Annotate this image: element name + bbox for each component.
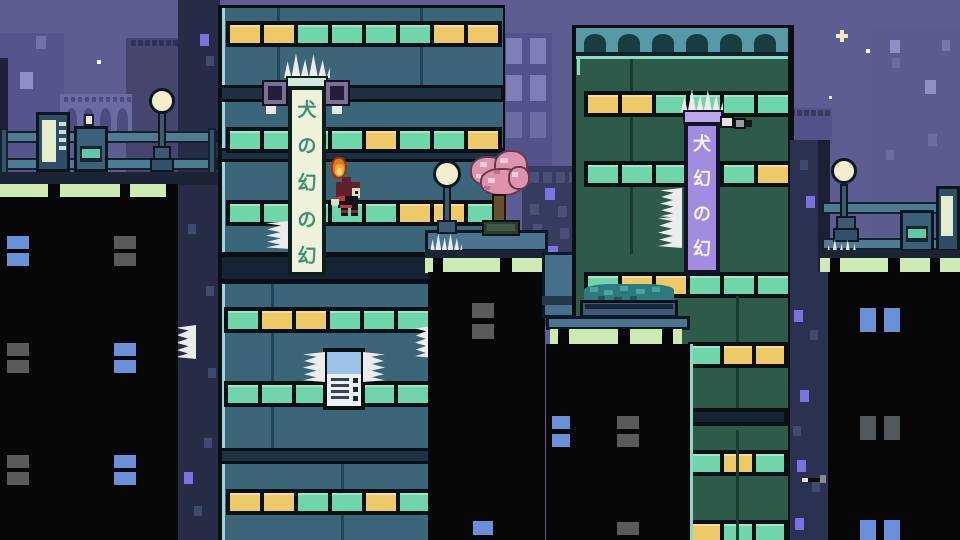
- window-strip-f4-segment: [330, 311, 360, 329]
- colonnade-dentils: [120, 97, 124, 102]
- right-building-edge-tick: [577, 59, 580, 75]
- bg-dentils: [145, 40, 150, 46]
- navy-window-purple: [795, 518, 804, 530]
- star-dot: [829, 96, 832, 99]
- security-camera-mount: [720, 116, 734, 128]
- navy-window-dim: [810, 330, 818, 340]
- player-shoe: [351, 210, 358, 213]
- navy-window-dim: [800, 160, 808, 170]
- window-pair-gray: [472, 303, 494, 318]
- window-pair-blue: [552, 434, 570, 447]
- banner-right-char: の: [690, 201, 714, 229]
- game-viewport[interactable]: 犬の幻の幻犬幻の幻: [0, 0, 960, 540]
- window-strip-f1-segment: [468, 25, 498, 43]
- navy-window-dim: [194, 506, 202, 516]
- notice-dot: [353, 396, 358, 401]
- speaker-cone: [268, 86, 282, 100]
- parapet-notch: [120, 184, 130, 198]
- window-strip-f1-segment: [264, 25, 294, 43]
- window-pair-blue: [7, 253, 29, 266]
- bottle: [84, 114, 94, 126]
- kiosk-label: [908, 229, 926, 238]
- window-strip-s2-segment: [622, 165, 652, 183]
- window-pair-gray: [472, 324, 494, 339]
- cornice-arches: [754, 34, 776, 52]
- window-strip-f6-segment: [366, 493, 396, 511]
- notice-line: [331, 384, 349, 387]
- cornice-arches: [618, 34, 640, 52]
- navy-window-purple: [797, 460, 806, 472]
- bg-window-dim: [530, 172, 539, 183]
- colonnade-dentils: [78, 97, 82, 102]
- cornice-arches: [720, 34, 742, 52]
- window-strip-f6-segment: [400, 493, 430, 511]
- street-lamp-base: [150, 158, 174, 172]
- parapet-notch: [500, 258, 512, 273]
- navy-window-dim: [204, 438, 212, 448]
- parapet-notch: [662, 329, 673, 344]
- notice-line: [331, 396, 349, 399]
- window-pair-gray: [7, 343, 29, 356]
- window-strip-s2-segment: [758, 165, 788, 183]
- cornice-arches: [584, 34, 606, 52]
- colonnade-dentils: [64, 97, 68, 102]
- window-strip-f3-segment: [230, 204, 260, 222]
- cherry-highlight: [476, 174, 481, 178]
- window-pair-blue: [114, 360, 136, 373]
- vending-screen: [941, 196, 953, 236]
- bg-dentils: [152, 40, 157, 46]
- bg-window: [886, 150, 894, 160]
- bg-big-window: [530, 75, 546, 101]
- cherry-highlight: [500, 158, 508, 163]
- security-camera-lens: [746, 120, 752, 127]
- player-hair-spike: [342, 177, 351, 184]
- right-building-edge-light: [690, 344, 693, 540]
- vending-slot: [59, 122, 66, 126]
- navy-window-dim: [206, 286, 214, 296]
- bg-window-dim: [530, 204, 539, 215]
- star-dot: [97, 60, 101, 64]
- colonnade-dentils: [85, 97, 89, 102]
- cherry-highlight: [488, 178, 495, 183]
- bush-highlight: [604, 290, 613, 295]
- navy-window-purple: [200, 34, 209, 46]
- window-strip-s6-segment: [692, 524, 720, 540]
- parapet-windows: [0, 184, 178, 198]
- window-strip-f5-segment: [364, 385, 394, 403]
- bg-window: [892, 58, 900, 68]
- colonnade-dentils: [92, 97, 96, 102]
- bg-dentils: [138, 40, 143, 46]
- bg-dentils: [811, 110, 816, 116]
- bg-big-window: [506, 38, 522, 64]
- bg-window: [928, 134, 937, 146]
- window-strip-s4-segment: [724, 346, 752, 364]
- window-strip-f5-segment: [262, 385, 292, 403]
- parapet-notch: [830, 258, 840, 272]
- navy-window-dim: [206, 56, 214, 66]
- cherry-canopy: [508, 166, 530, 190]
- vending-screen: [42, 120, 56, 162]
- window-pair-blue: [473, 521, 493, 535]
- mid-parapet-windows: [425, 258, 545, 273]
- window-strip-f1-segment: [434, 25, 464, 43]
- window-strip-f1-segment: [230, 25, 260, 43]
- window-pair-blue: [552, 416, 570, 429]
- window-pair-gray: [617, 522, 639, 535]
- window-strip-f5-segment: [296, 385, 326, 403]
- notice-dot: [353, 378, 358, 383]
- cherry-pot-inner: [487, 224, 515, 231]
- banner-right-char: 幻: [690, 236, 714, 264]
- navy-window-purple: [806, 196, 815, 208]
- railing-post: [0, 128, 8, 176]
- roof-lamp-base: [833, 228, 859, 242]
- window-strip-f2-segment: [434, 131, 464, 149]
- window-strip-s6-segment: [756, 524, 784, 540]
- parapet-notch: [618, 329, 630, 344]
- navy-window-dim: [793, 426, 801, 436]
- banner-left-char: 幻: [294, 169, 320, 197]
- drone-tail: [820, 475, 826, 483]
- cherry-shadow: [484, 186, 490, 190]
- bg-big-window: [506, 112, 522, 138]
- navy-window-purple: [794, 310, 803, 322]
- bg-dentils: [818, 110, 823, 116]
- window-pair-blue: [114, 455, 136, 468]
- player-hand: [331, 199, 339, 205]
- window-strip-f3-segment: [366, 204, 396, 222]
- window-pair-gray: [617, 434, 639, 447]
- navy-window-dim: [812, 482, 820, 492]
- window-pair-gray: [860, 416, 876, 440]
- plaza-lamp-base: [437, 220, 457, 234]
- window-strip-f5-segment: [398, 385, 428, 403]
- street-lamp-globe: [149, 88, 175, 114]
- window-strip-f2-segment: [332, 131, 362, 149]
- bg-dentils: [166, 40, 171, 46]
- window-strip-f6-segment: [298, 493, 328, 511]
- bush-highlight: [652, 287, 660, 292]
- window-strip-f4-segment: [296, 311, 326, 329]
- window-pair-gray: [7, 472, 29, 485]
- bg-window-dim: [558, 206, 567, 217]
- cherry-shadow: [494, 170, 500, 174]
- parapet-notch: [433, 258, 443, 273]
- player-shoe: [341, 210, 348, 213]
- parapet-notch: [930, 258, 940, 272]
- window-strip-s2-segment: [588, 165, 618, 183]
- window-pair-blue: [884, 308, 900, 332]
- navy-window-dim: [208, 368, 216, 378]
- bg-big-window: [530, 112, 546, 138]
- colonnade-arches: [117, 108, 128, 132]
- window-strip-f5-segment: [228, 385, 258, 403]
- window-strip-s1-segment: [588, 95, 618, 113]
- colonnade-dentils: [99, 97, 103, 102]
- bush-highlight: [590, 287, 598, 292]
- bg-big-window: [506, 75, 522, 101]
- window-strip-s4-segment: [692, 346, 720, 364]
- drone-body: [808, 478, 820, 482]
- star-dot: [866, 49, 870, 53]
- window-strip-f2-segment: [400, 131, 430, 149]
- bg-window: [36, 36, 46, 49]
- parapet-notch: [166, 184, 178, 198]
- bg-dentils: [797, 110, 802, 116]
- window-strip-f6-segment: [332, 493, 362, 511]
- vending-slot: [59, 146, 66, 150]
- railing-bar: [0, 158, 218, 170]
- navy-window-dim: [188, 224, 196, 234]
- window-strip-s3-segment: [690, 276, 720, 294]
- player-eye: [355, 191, 358, 194]
- window-strip-s2-segment: [724, 165, 754, 183]
- speaker-cone: [330, 86, 344, 100]
- bg-window-dim: [560, 228, 569, 239]
- window-strip-f4-segment: [364, 311, 394, 329]
- window-strip-s4-segment: [756, 346, 784, 364]
- window-pair-gray: [7, 455, 29, 468]
- window-strip-f2-segment: [230, 131, 260, 149]
- bg-window: [942, 40, 950, 51]
- notice-dot: [353, 387, 358, 392]
- window-strip-s2-segment: [656, 165, 686, 183]
- notice-line: [331, 378, 349, 381]
- bg-dentils: [159, 40, 164, 46]
- window-strip-f2-segment: [468, 131, 498, 149]
- colonnade-dentils: [113, 97, 117, 102]
- kiosk-label: [82, 149, 100, 158]
- cornice-arches: [686, 34, 708, 52]
- banner-left-char: 幻: [294, 242, 320, 270]
- navy-tower-left: [178, 0, 220, 540]
- cherry-highlight: [512, 172, 518, 177]
- banner-left-char: 犬: [294, 96, 320, 124]
- flame-core: [337, 168, 342, 175]
- player-scarf: [338, 196, 345, 201]
- window-strip-f4-segment: [262, 311, 292, 329]
- window-strip-s1-segment: [758, 95, 788, 113]
- window-pair-gray: [884, 416, 900, 440]
- bg-window: [20, 72, 33, 89]
- colonnade-dentils: [71, 97, 75, 102]
- navy-window-purple: [800, 390, 809, 402]
- bg-window: [890, 40, 900, 53]
- notice-sign-top: [327, 352, 361, 374]
- navy-window-purple: [184, 472, 193, 484]
- bg-dentils: [825, 110, 830, 116]
- parapet-notch: [558, 329, 569, 344]
- window-strip-f4-segment: [398, 311, 428, 329]
- window-strip-s3-segment: [724, 276, 754, 294]
- window-pair-blue: [7, 236, 29, 249]
- parapet-notch: [888, 258, 900, 272]
- bush-highlight: [620, 286, 628, 291]
- cherry-highlight: [480, 162, 487, 167]
- vending-slot: [59, 130, 66, 134]
- window-strip-f6-segment: [230, 493, 260, 511]
- plaza-lamp-globe: [433, 160, 461, 188]
- bush-highlight: [636, 289, 645, 294]
- window-strip-f1-segment: [366, 25, 396, 43]
- speaker-bracket: [266, 106, 276, 114]
- window-strip-f1-segment: [400, 25, 430, 43]
- bg-window-dim: [543, 172, 552, 183]
- vending-slot: [59, 138, 66, 142]
- window-strip-s5-segment: [756, 454, 784, 472]
- window-strip-f4-segment: [228, 311, 258, 329]
- window-pair-blue: [114, 343, 136, 356]
- planter-box-shadow: [585, 304, 673, 309]
- window-pair-gray: [114, 253, 136, 266]
- roof-lamp-globe: [831, 158, 857, 184]
- window-pair-blue: [884, 520, 900, 540]
- parapet-notch: [48, 184, 60, 198]
- mullion-green: [630, 59, 633, 254]
- bg-window-purple: [545, 188, 555, 200]
- banner-left-char: の: [294, 206, 320, 234]
- mid-right-ledge: [546, 316, 690, 330]
- bg-big-window: [530, 38, 546, 64]
- star: [836, 34, 848, 38]
- window-strip-f1-segment: [298, 25, 328, 43]
- banner-right-char: 幻: [690, 166, 714, 194]
- bg-window-dim: [556, 172, 565, 183]
- window-strip-s3-segment: [758, 276, 788, 294]
- colonnade-dentils: [106, 97, 110, 102]
- window-strip-f1-segment: [332, 25, 362, 43]
- cornice-arches: [652, 34, 674, 52]
- banner-right-char: 犬: [690, 131, 714, 159]
- security-camera-body: [734, 118, 746, 129]
- window-pair-blue: [860, 520, 876, 540]
- bg-dentils: [804, 110, 809, 116]
- bg-window: [925, 80, 936, 94]
- mullion-green: [736, 430, 739, 540]
- window-strip-f2-segment: [366, 131, 396, 149]
- colonnade-dentils: [127, 97, 131, 102]
- window-pair-blue: [860, 308, 876, 332]
- window-pair-gray: [114, 236, 136, 249]
- window-pair-blue: [114, 472, 136, 485]
- floor-separator-green-inner: [688, 412, 784, 422]
- banner-left-char: の: [294, 132, 320, 160]
- window-strip-s5-segment: [692, 454, 720, 472]
- railing-post: [208, 128, 216, 176]
- window-strip-s1-segment: [724, 95, 754, 113]
- speaker-bracket: [332, 106, 342, 114]
- window-pair-gray: [7, 360, 29, 373]
- window-strip-f6-segment: [264, 493, 294, 511]
- window-pair-gray: [617, 416, 639, 429]
- window-strip-f3-segment: [400, 204, 430, 222]
- window-strip-s1-segment: [622, 95, 652, 113]
- notice-line: [331, 390, 349, 393]
- bg-dentils: [131, 40, 136, 46]
- railing-bar: [0, 131, 218, 143]
